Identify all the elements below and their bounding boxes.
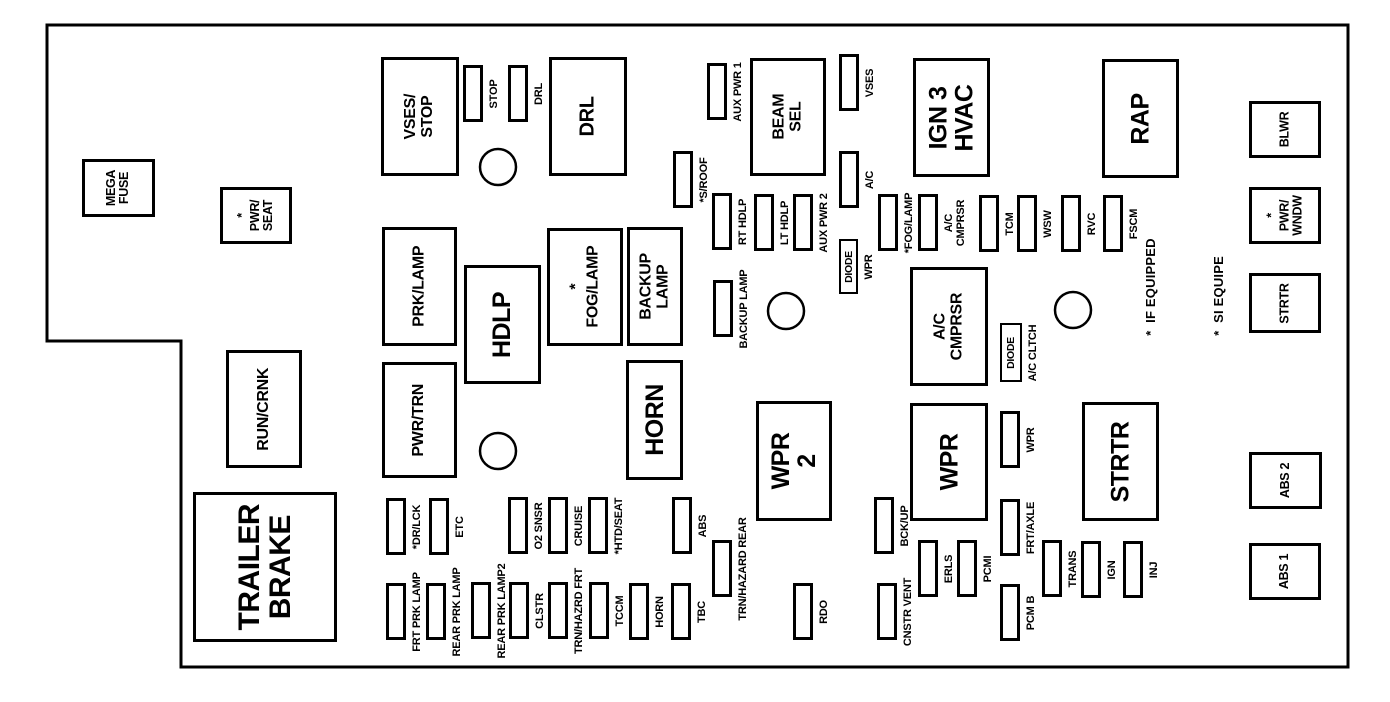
relay-abs-1: ABS 1: [1249, 543, 1321, 600]
mounting-hole-top: [480, 149, 516, 185]
fog-lamp-label: * FOG/LAMP: [568, 246, 601, 328]
fuse-stop: [463, 65, 483, 122]
fuse-trans: [1042, 540, 1062, 597]
relay-strtr-relay: STRTR: [1082, 402, 1159, 521]
fscm-label: FSCM: [1128, 208, 1140, 238]
etc-label: ETC: [454, 516, 466, 537]
clstr-label: CLSTR: [534, 593, 546, 629]
fuse-horn-fuse: [629, 583, 649, 640]
diode-wpr-text: DIODE: [843, 251, 855, 283]
lt-hdlp-label: LT HDLP: [779, 200, 791, 244]
fuse-abs: [672, 497, 692, 554]
trn-hazard-rear-label: TRN/HAZARD REAR: [737, 517, 749, 620]
mega-fuse-label: MEGA FUSE: [106, 170, 132, 206]
relay-ign3-hvac: IGN 3 HVAC: [913, 58, 990, 177]
pwr-seat-label: * PWR/ SEAT: [237, 200, 276, 231]
tcm-label: TCM: [1004, 212, 1016, 235]
relay-vses-stop: VSES/ STOP: [381, 57, 459, 176]
fuse-wpr-fuse: [1000, 411, 1020, 468]
fuse-etc: [429, 498, 449, 555]
fuse-ac: [839, 151, 859, 208]
diode-ac-cltch-text: DIODE: [1005, 337, 1017, 369]
s-roof-label: *S/ROOF: [698, 157, 710, 202]
abs-1-label: ABS 1: [1278, 554, 1291, 589]
wpr-2-label: WPR 2: [768, 426, 820, 496]
frt-prk-lamp-label: FRT PRK LAMP: [411, 572, 423, 651]
diode-ac-cltch: DIODE: [1000, 323, 1022, 382]
o2-snsr-label: O2 SNSR: [533, 502, 545, 549]
frt-axle-label: FRT/AXLE: [1025, 501, 1037, 553]
pcmi-label: PCMI: [982, 555, 994, 582]
fuse-tccm: [589, 582, 609, 639]
fuse-backup-lamp-fuse: [713, 280, 733, 337]
wpr-fuse-label: WPR: [1025, 427, 1037, 452]
fuse-cruise: [548, 497, 568, 554]
fuse-frt-axle: [1000, 499, 1020, 556]
relay-ac-cmprsr-relay: A/C CMPRSR: [910, 267, 988, 386]
fuse-wsw: [1017, 195, 1037, 252]
abs-label: ABS: [697, 514, 709, 537]
relay-prk-lamp: PRK/LAMP: [382, 227, 457, 346]
fuse-aux-pwr-2: [793, 194, 813, 251]
fuse-lt-hdlp: [754, 194, 774, 251]
fuse-pcm-b: [1000, 584, 1020, 641]
mounting-hole-center: [768, 293, 804, 329]
fuse-rvc: [1061, 195, 1081, 252]
rap-label: RAP: [1127, 93, 1153, 144]
bck-up-label: BCK/UP: [899, 505, 911, 546]
relay-hdlp: HDLP: [464, 265, 541, 384]
relay-pwr-trn: PWR/TRN: [382, 362, 457, 478]
ign3-hvac-label: IGN 3 HVAC: [925, 84, 977, 151]
relay-mega-fuse: MEGA FUSE: [82, 159, 155, 217]
trans-label: TRANS: [1067, 550, 1079, 587]
ac-cmprsr-fuse-label: A/C CMPRSR: [943, 199, 967, 245]
if-equipped-line-en: * IF EQUIPPED: [1140, 238, 1163, 335]
strtr-relay-label: STRTR: [1108, 421, 1134, 502]
stop-label: STOP: [488, 79, 500, 108]
trailer-brake-label: TRAILER BRAKE: [234, 504, 296, 631]
hdlp-label: HDLP: [490, 291, 516, 357]
tbc-label: TBC: [696, 600, 708, 622]
vses-stop-label: VSES/ STOP: [403, 94, 436, 140]
fuse-s-roof: [673, 151, 693, 208]
fog-lamp-fuse-label: *FOG/LAMP: [903, 192, 915, 253]
pwr-trn-label: PWR/TRN: [411, 384, 428, 457]
relay-run-crnk: RUN/CRNK: [226, 350, 302, 468]
fuse-rear-prk-lamp2: [471, 582, 491, 639]
vses-label: VSES: [864, 68, 876, 97]
blwr-label: BLWR: [1278, 112, 1291, 148]
fuse-cnstr-vent: [877, 583, 897, 640]
rvc-label: RVC: [1086, 212, 1098, 234]
fuse-rdo: [793, 583, 813, 640]
fuse-rt-hdlp: [712, 193, 732, 250]
wsw-label: WSW: [1042, 210, 1054, 238]
fuse-box-diagram: MEGA FUSE* PWR/ SEATVSES/ STOPDRLBEAM SE…: [0, 0, 1390, 702]
drl-fuse-label: DRL: [533, 82, 545, 104]
backup-lamp-fuse-label: BACKUP LAMP: [738, 269, 750, 348]
ign-label: IGN: [1106, 560, 1118, 579]
pwr-wndw-label: * PWR/ WNDW: [1265, 195, 1304, 235]
dr-lck-label: *DR/LCK: [411, 504, 423, 548]
htd-seat-label: *HTD/SEAT: [613, 497, 625, 554]
aux-pwr-2-label: AUX PWR 2: [818, 193, 830, 252]
relay-pwr-seat: * PWR/ SEAT: [220, 187, 292, 244]
fuse-drl-fuse: [508, 65, 528, 122]
ac-cmprsr-relay-label: A/C CMPRSR: [932, 291, 965, 363]
if-equipped-line-fr: * SI EQUIPE: [1208, 238, 1231, 335]
erls-label: ERLS: [943, 554, 955, 583]
fuse-ac-cmprsr-fuse: [918, 194, 938, 251]
ac-label: A/C: [864, 170, 876, 188]
diode-ac-cltch-label: A/C CLTCH: [1027, 324, 1039, 381]
trn-hazrd-frt-label: TRN/HAZRD FRT: [573, 568, 585, 654]
fuse-vses: [839, 54, 859, 111]
mounting-hole-right: [1055, 292, 1091, 328]
fuse-bck-up: [874, 497, 894, 554]
fuse-tbc: [671, 583, 691, 640]
diode-wpr-label: WPR: [863, 254, 875, 279]
beam-sel-label: BEAM SEL: [771, 82, 804, 152]
horn-label: HORN: [642, 384, 668, 456]
strtr-right-label: STRTR: [1278, 283, 1291, 323]
prk-lamp-label: PRK/LAMP: [411, 246, 428, 327]
relay-rap: RAP: [1102, 59, 1179, 178]
backup-lamp-label: BACKUP LAMP: [638, 253, 671, 319]
fuse-rear-prk-lamp: [426, 583, 446, 640]
fuse-trn-hazard-rear: [712, 540, 732, 597]
relay-abs-2: ABS 2: [1249, 452, 1322, 509]
fuse-trn-hazrd-frt: [548, 582, 568, 639]
relay-wpr-2: WPR 2: [756, 401, 832, 521]
relay-trailer-brake: TRAILER BRAKE: [193, 492, 337, 642]
cnstr-vent-label: CNSTR VENT: [902, 577, 914, 645]
fuse-htd-seat: [588, 497, 608, 554]
fuse-aux-pwr-1: [707, 63, 727, 120]
relay-drl: DRL: [549, 57, 627, 176]
relay-wpr-relay: WPR: [910, 403, 988, 521]
fuse-ign: [1081, 541, 1101, 598]
relay-backup-lamp: BACKUP LAMP: [627, 227, 683, 346]
wpr-relay-label: WPR: [936, 434, 962, 491]
run-crnk-label: RUN/CRNK: [256, 368, 273, 451]
horn-fuse-label: HORN: [654, 596, 666, 628]
fuse-o2-snsr: [508, 497, 528, 554]
if-equipped-note: * IF EQUIPPED * SI EQUIPE: [1094, 238, 1276, 335]
fuse-fog-lamp-fuse: [878, 194, 898, 251]
relay-horn: HORN: [626, 360, 683, 480]
tccm-label: TCCM: [614, 595, 626, 626]
relay-pwr-wndw: * PWR/ WNDW: [1249, 187, 1321, 244]
rear-prk-lamp-label: REAR PRK LAMP: [451, 567, 463, 656]
fuse-frt-prk-lamp: [386, 583, 406, 640]
fuse-tcm: [979, 195, 999, 252]
cruise-label: CRUISE: [573, 505, 585, 545]
mounting-hole-left: [480, 433, 516, 469]
relay-beam-sel: BEAM SEL: [750, 58, 826, 176]
drl-label: DRL: [578, 96, 599, 136]
abs-2-label: ABS 2: [1279, 463, 1292, 498]
fuse-dr-lck: [386, 498, 406, 555]
relay-fog-lamp: * FOG/LAMP: [547, 228, 623, 346]
aux-pwr-1-label: AUX PWR 1: [732, 62, 744, 121]
fuse-erls: [918, 540, 938, 597]
pcm-b-label: PCM B: [1025, 595, 1037, 629]
fuse-pcmi: [957, 540, 977, 597]
inj-label: INJ: [1148, 561, 1160, 578]
fuse-inj: [1123, 541, 1143, 598]
relay-blwr: BLWR: [1249, 101, 1321, 158]
rear-prk-lamp2-label: REAR PRK LAMP2: [496, 563, 508, 658]
fuse-clstr: [509, 582, 529, 639]
rdo-label: RDO: [818, 600, 830, 624]
diode-wpr: DIODE: [839, 239, 858, 294]
rt-hdlp-label: RT HDLP: [737, 198, 749, 244]
